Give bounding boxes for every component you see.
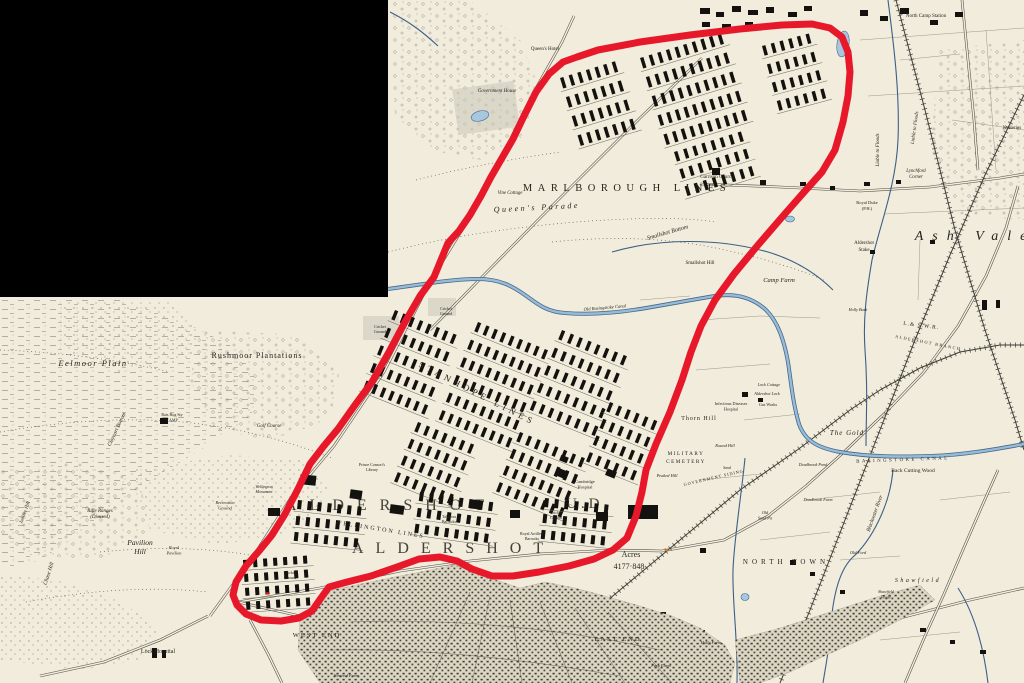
map-label-61: CricketGround xyxy=(440,306,453,316)
map-label-39: Shawfield xyxy=(895,577,941,584)
map-label-line: MILITARY xyxy=(668,451,705,457)
building-block-1 xyxy=(596,512,608,521)
map-label-46: Lock Hospital xyxy=(141,649,175,655)
map-label-2: Queen's Hotel xyxy=(531,47,560,52)
building-block-24 xyxy=(955,12,963,17)
building-block-49 xyxy=(982,300,987,310)
building-block-15 xyxy=(788,12,797,17)
map-label-63: CricketGround xyxy=(550,510,563,520)
building-block-32 xyxy=(840,590,845,594)
barrack-block xyxy=(256,601,261,609)
building-block-36 xyxy=(950,640,955,644)
map-label-line: Ground xyxy=(374,329,386,334)
map-label-7: Smallshot Hill xyxy=(685,261,715,266)
map-label-line: Sand Pit xyxy=(758,516,773,521)
map-label-66: CambridgeHospital xyxy=(575,479,595,490)
building-block-27 xyxy=(830,186,835,190)
map-label-line: Monument xyxy=(254,489,273,494)
blackout-region xyxy=(0,0,388,297)
map-label-55: Golf Course xyxy=(257,424,282,429)
map-label-32: Peaked Hill xyxy=(656,473,679,478)
map-label-line: Shawfield xyxy=(878,589,895,594)
barrack-block xyxy=(246,602,251,610)
building-block-35 xyxy=(920,628,926,632)
map-label-64: CricketGround xyxy=(284,570,297,580)
map-label-35: Sand xyxy=(723,466,731,470)
building-block-10 xyxy=(700,8,710,14)
barrack-block xyxy=(266,600,271,608)
building-block-28 xyxy=(864,182,870,186)
map-label-line: CAMP xyxy=(166,418,178,423)
building-block-4 xyxy=(349,489,362,500)
map-label-line: Rifle Ranges xyxy=(86,509,112,514)
historic-map-canvas[interactable]: ALDERSHOTU.D.ALDERSHOT MARLBOROUGH LINES… xyxy=(0,0,1024,683)
map-label-line: Pavilion xyxy=(166,551,183,556)
map-label-line: Ground xyxy=(218,506,232,511)
barrack-block xyxy=(254,573,259,581)
map-label-line: Recreation xyxy=(214,500,235,505)
map-label-line: Aldershot xyxy=(854,241,874,246)
building-block-13 xyxy=(748,10,758,15)
barrack-block xyxy=(263,558,268,566)
map-label-16: Nurseries xyxy=(1003,126,1022,131)
building-block-26 xyxy=(800,182,806,186)
map-label-line: Hospital xyxy=(724,407,739,412)
map-label-3: Government House xyxy=(478,89,518,94)
map-label-23: Deadbrook Farm xyxy=(802,497,832,502)
map-label-13: Liable to Floods xyxy=(876,133,881,167)
building-block-9 xyxy=(712,168,720,175)
map-mask-layer xyxy=(0,0,388,297)
barrack-block xyxy=(296,598,301,606)
pond-2 xyxy=(741,594,749,601)
barrack-block xyxy=(306,597,311,605)
building-block-50 xyxy=(996,300,1000,308)
building-block-31 xyxy=(810,572,815,576)
map-label-line: Hospital xyxy=(578,485,594,490)
map-label-line: Barracks xyxy=(525,536,540,541)
barrack-block xyxy=(295,584,300,592)
map-label-line: Royal xyxy=(168,545,180,550)
map-label-line: Library xyxy=(366,467,378,472)
barrack-block xyxy=(274,572,279,580)
map-label-10: North Camp Station xyxy=(906,14,947,19)
historic-map-screenshot: ALDERSHOTU.D.ALDERSHOT MARLBOROUGH LINES… xyxy=(0,0,1024,683)
map-label-51: Rifle Ranges(Disused) xyxy=(86,509,112,520)
building-block-8 xyxy=(268,508,280,516)
barrack-block xyxy=(293,556,298,564)
map-label-62: CricketGround xyxy=(374,324,387,334)
map-label-line: CEMETERY xyxy=(666,459,706,465)
map-label-line: Ground xyxy=(284,575,296,580)
map-label-line: (P.H.) xyxy=(862,206,873,211)
map-label-25: Lock Cottage xyxy=(757,382,781,387)
map-label-21: Back Cutting Wood xyxy=(891,468,935,474)
barrack-block xyxy=(305,583,310,591)
map-label-28: Holly Bush xyxy=(848,307,868,312)
barrack-block xyxy=(244,574,249,582)
building-block-12 xyxy=(732,6,741,12)
barrack-block xyxy=(285,585,290,593)
map-label-4: Vine Cottage xyxy=(498,191,524,196)
map-label-44: WEST END xyxy=(293,632,342,639)
map-label-43: Holly Farm xyxy=(700,640,722,645)
map-label-29: Thorn Hill xyxy=(681,416,717,422)
barrack-block xyxy=(303,556,308,564)
map-label-15: Ash Vale xyxy=(914,229,1024,244)
building-block-23 xyxy=(930,20,938,25)
map-label-31: Round Hill xyxy=(714,443,735,448)
building-block-11 xyxy=(716,12,724,17)
map-label-line: Pavilion xyxy=(126,538,153,547)
map-label-38: Old Ford xyxy=(850,550,867,555)
map-label-line: Infectious Diseases xyxy=(715,401,748,406)
map-label-74: ALDERSHOT xyxy=(352,540,555,557)
map-label-26: Aldershot Lock xyxy=(753,391,780,396)
building-block-17 xyxy=(702,22,710,27)
building-block-7 xyxy=(510,510,520,518)
map-label-line: House xyxy=(880,595,891,600)
building-block-14 xyxy=(766,7,774,13)
barrack-block xyxy=(273,558,278,566)
building-block-21 xyxy=(880,16,888,21)
map-label-line: Lynchford xyxy=(905,169,926,174)
map-label-68: TalaveraBarracks xyxy=(442,514,457,524)
map-label-line: Royal Duke xyxy=(856,200,878,205)
barrack-block xyxy=(264,572,269,580)
map-label-line: Barracks xyxy=(442,519,457,524)
barrack-block xyxy=(255,587,260,595)
barrack-block xyxy=(275,586,280,594)
map-label-52: Eelmoor Plain xyxy=(57,358,127,368)
map-label-line: Ground xyxy=(550,515,562,520)
map-label-line: Old xyxy=(762,510,769,515)
map-label-line: Ground xyxy=(440,311,452,316)
barrack-block xyxy=(304,570,309,578)
map-label-41: EAST END xyxy=(594,636,641,643)
map-label-42: Park Farm xyxy=(650,663,670,668)
map-label-line: Hill xyxy=(133,547,146,556)
building-block-20 xyxy=(860,10,868,16)
map-label-22: Deadbrook Pond xyxy=(798,462,828,467)
map-label-0: MARLBOROUGH LINES xyxy=(523,183,731,194)
barrack-block xyxy=(276,600,281,608)
building-block-37 xyxy=(980,650,986,654)
map-label-line: Stake xyxy=(858,248,870,253)
map-label-line: (Disused) xyxy=(90,515,110,520)
building-block-46 xyxy=(742,392,748,397)
building-block-29 xyxy=(896,180,901,184)
map-label-8: Camp Farm xyxy=(763,277,795,284)
map-label-line: Cambridge xyxy=(575,479,595,484)
map-label-70: Acres xyxy=(622,550,641,559)
map-label-53: Rushmoor Plantations xyxy=(212,351,303,360)
map-label-36: NORTH TOWN xyxy=(743,558,829,566)
building-block-16 xyxy=(804,6,812,11)
map-label-71: 4177·848 xyxy=(614,562,645,571)
map-label-27: Gas Works xyxy=(759,402,778,407)
map-label-58: WellingtonMonument xyxy=(254,484,273,494)
barrack-block xyxy=(286,599,291,607)
map-label-line: Corner xyxy=(909,175,923,180)
map-label-19: The Gold xyxy=(830,429,864,437)
map-label-line: Bats Hog Sty xyxy=(161,412,182,417)
building-block-25 xyxy=(760,180,766,185)
building-block-53 xyxy=(700,548,706,553)
building-block-52 xyxy=(870,250,875,254)
barrack-block xyxy=(245,588,250,596)
map-label-5: Garrison Church xyxy=(700,175,734,180)
barrack-block xyxy=(283,557,288,565)
map-label-45: Westend Farm xyxy=(333,673,358,678)
building-block-6 xyxy=(470,499,483,509)
